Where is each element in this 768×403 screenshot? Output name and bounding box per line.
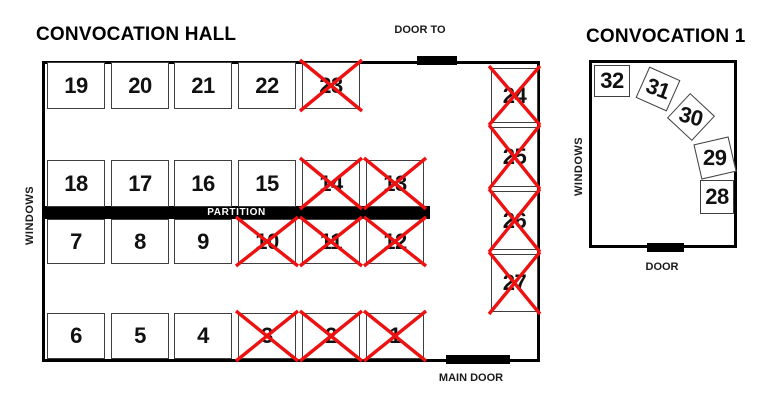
booth-17: 17 (111, 160, 169, 207)
main-door-marker (446, 355, 510, 364)
booth-number: 11 (320, 231, 342, 253)
booth-number: 5 (134, 325, 146, 347)
booth-number: 14 (319, 173, 342, 195)
booth-20: 20 (111, 62, 169, 109)
booth-3: 3 (238, 313, 296, 359)
door-to-label: DOOR TO (370, 24, 470, 36)
room1-door-label: DOOR (612, 261, 712, 273)
booth-number: 1 (389, 325, 401, 347)
booth-number: 24 (503, 85, 526, 107)
booth-11: 11 (302, 219, 360, 264)
booth-number: 6 (70, 325, 82, 347)
partition-label: PARTITION (207, 206, 266, 219)
booth-number: 32 (600, 70, 623, 92)
booth-10: 10 (238, 219, 296, 264)
booth-31: 31 (636, 67, 681, 112)
booth-24: 24 (491, 68, 538, 123)
room1-door-marker (647, 243, 684, 252)
booth-number: 7 (70, 231, 82, 253)
booth-number: 19 (64, 75, 87, 97)
main-door-label: MAIN DOOR (421, 372, 521, 384)
booth-8: 8 (111, 219, 169, 264)
top-door-marker (417, 56, 457, 65)
booth-number: 15 (255, 173, 278, 195)
booth-number: 12 (383, 231, 406, 253)
booth-27: 27 (491, 254, 538, 312)
booth-number: 23 (319, 75, 342, 97)
booth-number: 25 (503, 146, 526, 168)
booth-number: 20 (128, 75, 151, 97)
convocation-hall-room: PARTITION 192021222318171615141378910111… (42, 61, 540, 362)
booth-15: 15 (238, 160, 296, 207)
booth-32: 32 (594, 65, 630, 97)
booth-26: 26 (491, 191, 538, 250)
booth-4: 4 (174, 313, 232, 359)
booth-18: 18 (47, 160, 105, 207)
booth-6: 6 (47, 313, 105, 359)
booth-2: 2 (302, 313, 360, 359)
booth-14: 14 (302, 160, 360, 207)
booth-number: 30 (677, 103, 705, 130)
booth-29: 29 (693, 136, 736, 179)
booth-number: 16 (191, 173, 214, 195)
floor-plan: CONVOCATION HALL CONVOCATION 1 DOOR TO W… (0, 0, 768, 403)
booth-13: 13 (366, 160, 424, 207)
booth-number: 8 (134, 231, 146, 253)
booth-7: 7 (47, 219, 105, 264)
booth-21: 21 (174, 62, 232, 109)
room1-title: CONVOCATION 1 (586, 26, 746, 48)
booth-28: 28 (700, 180, 734, 214)
booth-22: 22 (238, 62, 296, 109)
booth-23: 23 (302, 62, 360, 109)
booth-12: 12 (366, 219, 424, 264)
booth-9: 9 (174, 219, 232, 264)
booth-number: 29 (703, 147, 727, 169)
booth-number: 17 (128, 173, 151, 195)
booth-number: 28 (705, 186, 728, 208)
convocation-1-room: 3231302928 (589, 60, 737, 248)
booth-number: 18 (64, 173, 87, 195)
booth-number: 21 (191, 75, 214, 97)
booth-5: 5 (111, 313, 169, 359)
booth-1: 1 (366, 313, 424, 359)
booth-number: 2 (325, 325, 337, 347)
booth-number: 13 (383, 173, 406, 195)
booth-number: 10 (255, 231, 278, 253)
booth-30: 30 (667, 93, 715, 141)
booth-number: 26 (503, 210, 526, 232)
booth-number: 4 (197, 325, 209, 347)
booth-number: 9 (197, 231, 209, 253)
room1-windows-label: WINDOWS (573, 138, 585, 196)
booth-number: 27 (503, 272, 526, 294)
booth-25: 25 (491, 127, 538, 187)
booth-number: 3 (261, 325, 273, 347)
partition-bar: PARTITION (43, 206, 430, 219)
hall-title: CONVOCATION HALL (36, 24, 236, 46)
hall-windows-label: WINDOWS (24, 182, 36, 248)
booth-number: 22 (255, 75, 278, 97)
booth-number: 31 (643, 75, 673, 104)
booth-19: 19 (47, 62, 105, 109)
booth-16: 16 (174, 160, 232, 207)
